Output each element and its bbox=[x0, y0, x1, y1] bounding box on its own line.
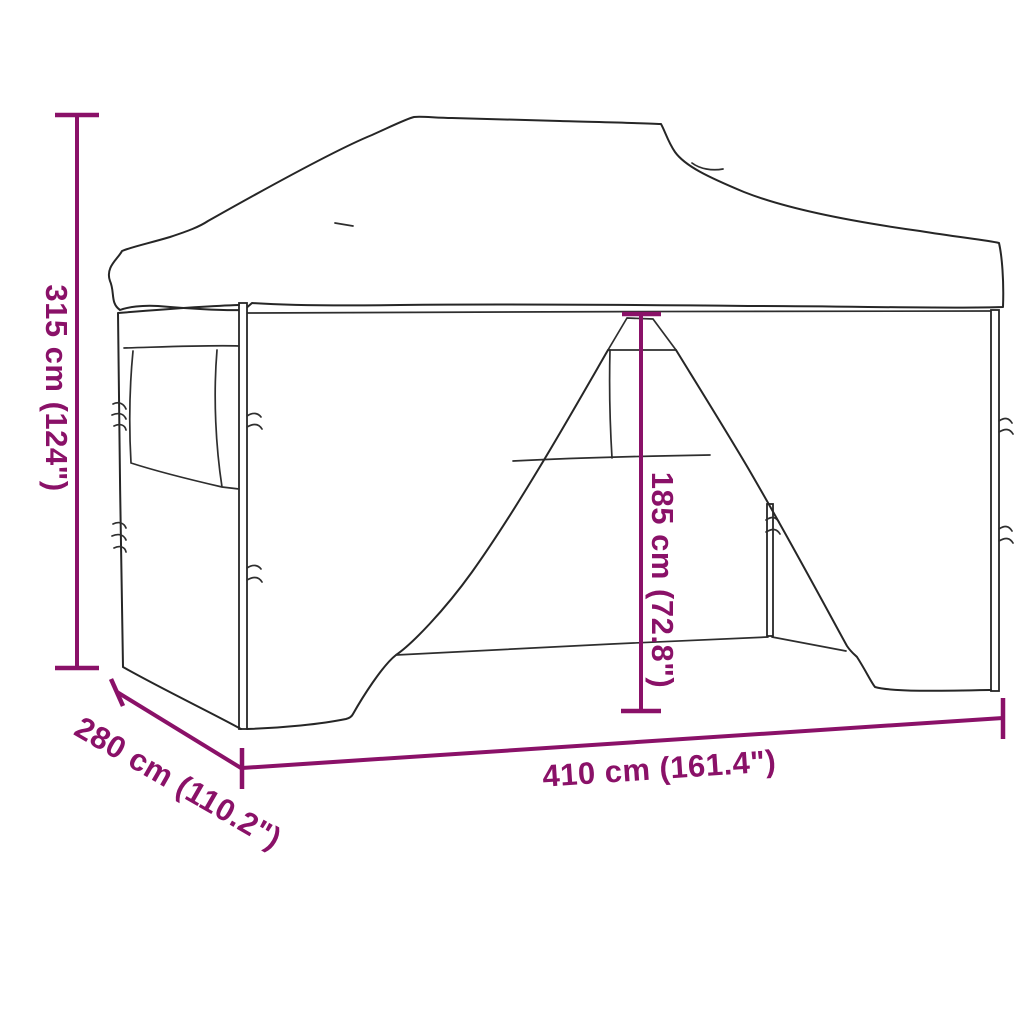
back-wall-seams bbox=[513, 350, 710, 461]
front-door-opening bbox=[247, 318, 1013, 729]
left-sidewall-outline bbox=[118, 305, 241, 729]
gazebo-dimension-diagram: 315 cm (124") 280 cm (110.2") 410 cm (16… bbox=[0, 0, 1024, 1024]
canopy-fold-marks bbox=[335, 163, 723, 226]
right-pole-ties bbox=[999, 419, 1013, 543]
ground-line bbox=[396, 637, 846, 655]
left-sidewall-window bbox=[124, 346, 239, 489]
dimension-label-door-height: 185 cm (72.8") bbox=[645, 472, 680, 688]
front-left-pole bbox=[239, 303, 247, 729]
dimension-annotations: 315 cm (124") 280 cm (110.2") 410 cm (16… bbox=[39, 115, 1003, 856]
dimension-label-width: 410 cm (161.4") bbox=[541, 743, 777, 793]
back-right-pole bbox=[767, 504, 773, 636]
dimension-door-height: 185 cm (72.8") bbox=[621, 314, 680, 711]
gazebo-drawing bbox=[109, 117, 1013, 729]
canopy-outline bbox=[109, 117, 1003, 310]
door-left-flap bbox=[247, 350, 608, 729]
dimension-diagram-page: 315 cm (124") 280 cm (110.2") 410 cm (16… bbox=[0, 0, 1024, 1024]
front-right-pole bbox=[991, 310, 999, 691]
dimension-overall-height: 315 cm (124") bbox=[39, 115, 99, 668]
frame-top-bar bbox=[247, 311, 990, 313]
dimension-label-overall-height: 315 cm (124") bbox=[39, 284, 74, 491]
left-pole-ties bbox=[247, 413, 262, 582]
